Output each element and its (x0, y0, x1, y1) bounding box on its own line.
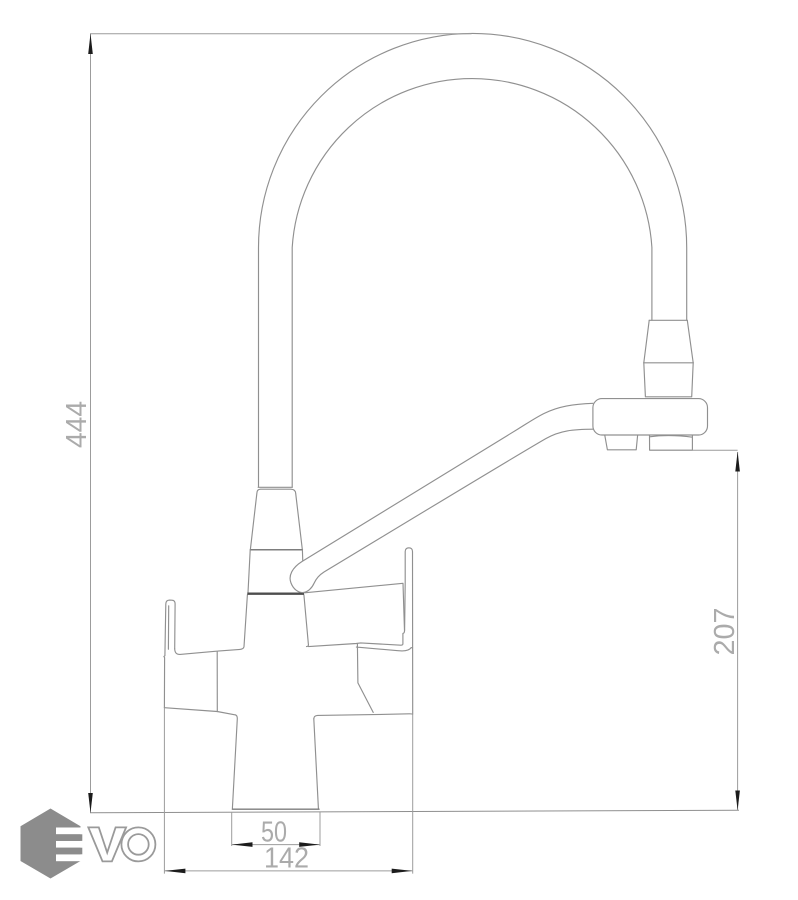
svg-text:207: 207 (709, 608, 741, 656)
svg-text:444: 444 (61, 401, 93, 448)
svg-text:142: 142 (264, 843, 309, 875)
